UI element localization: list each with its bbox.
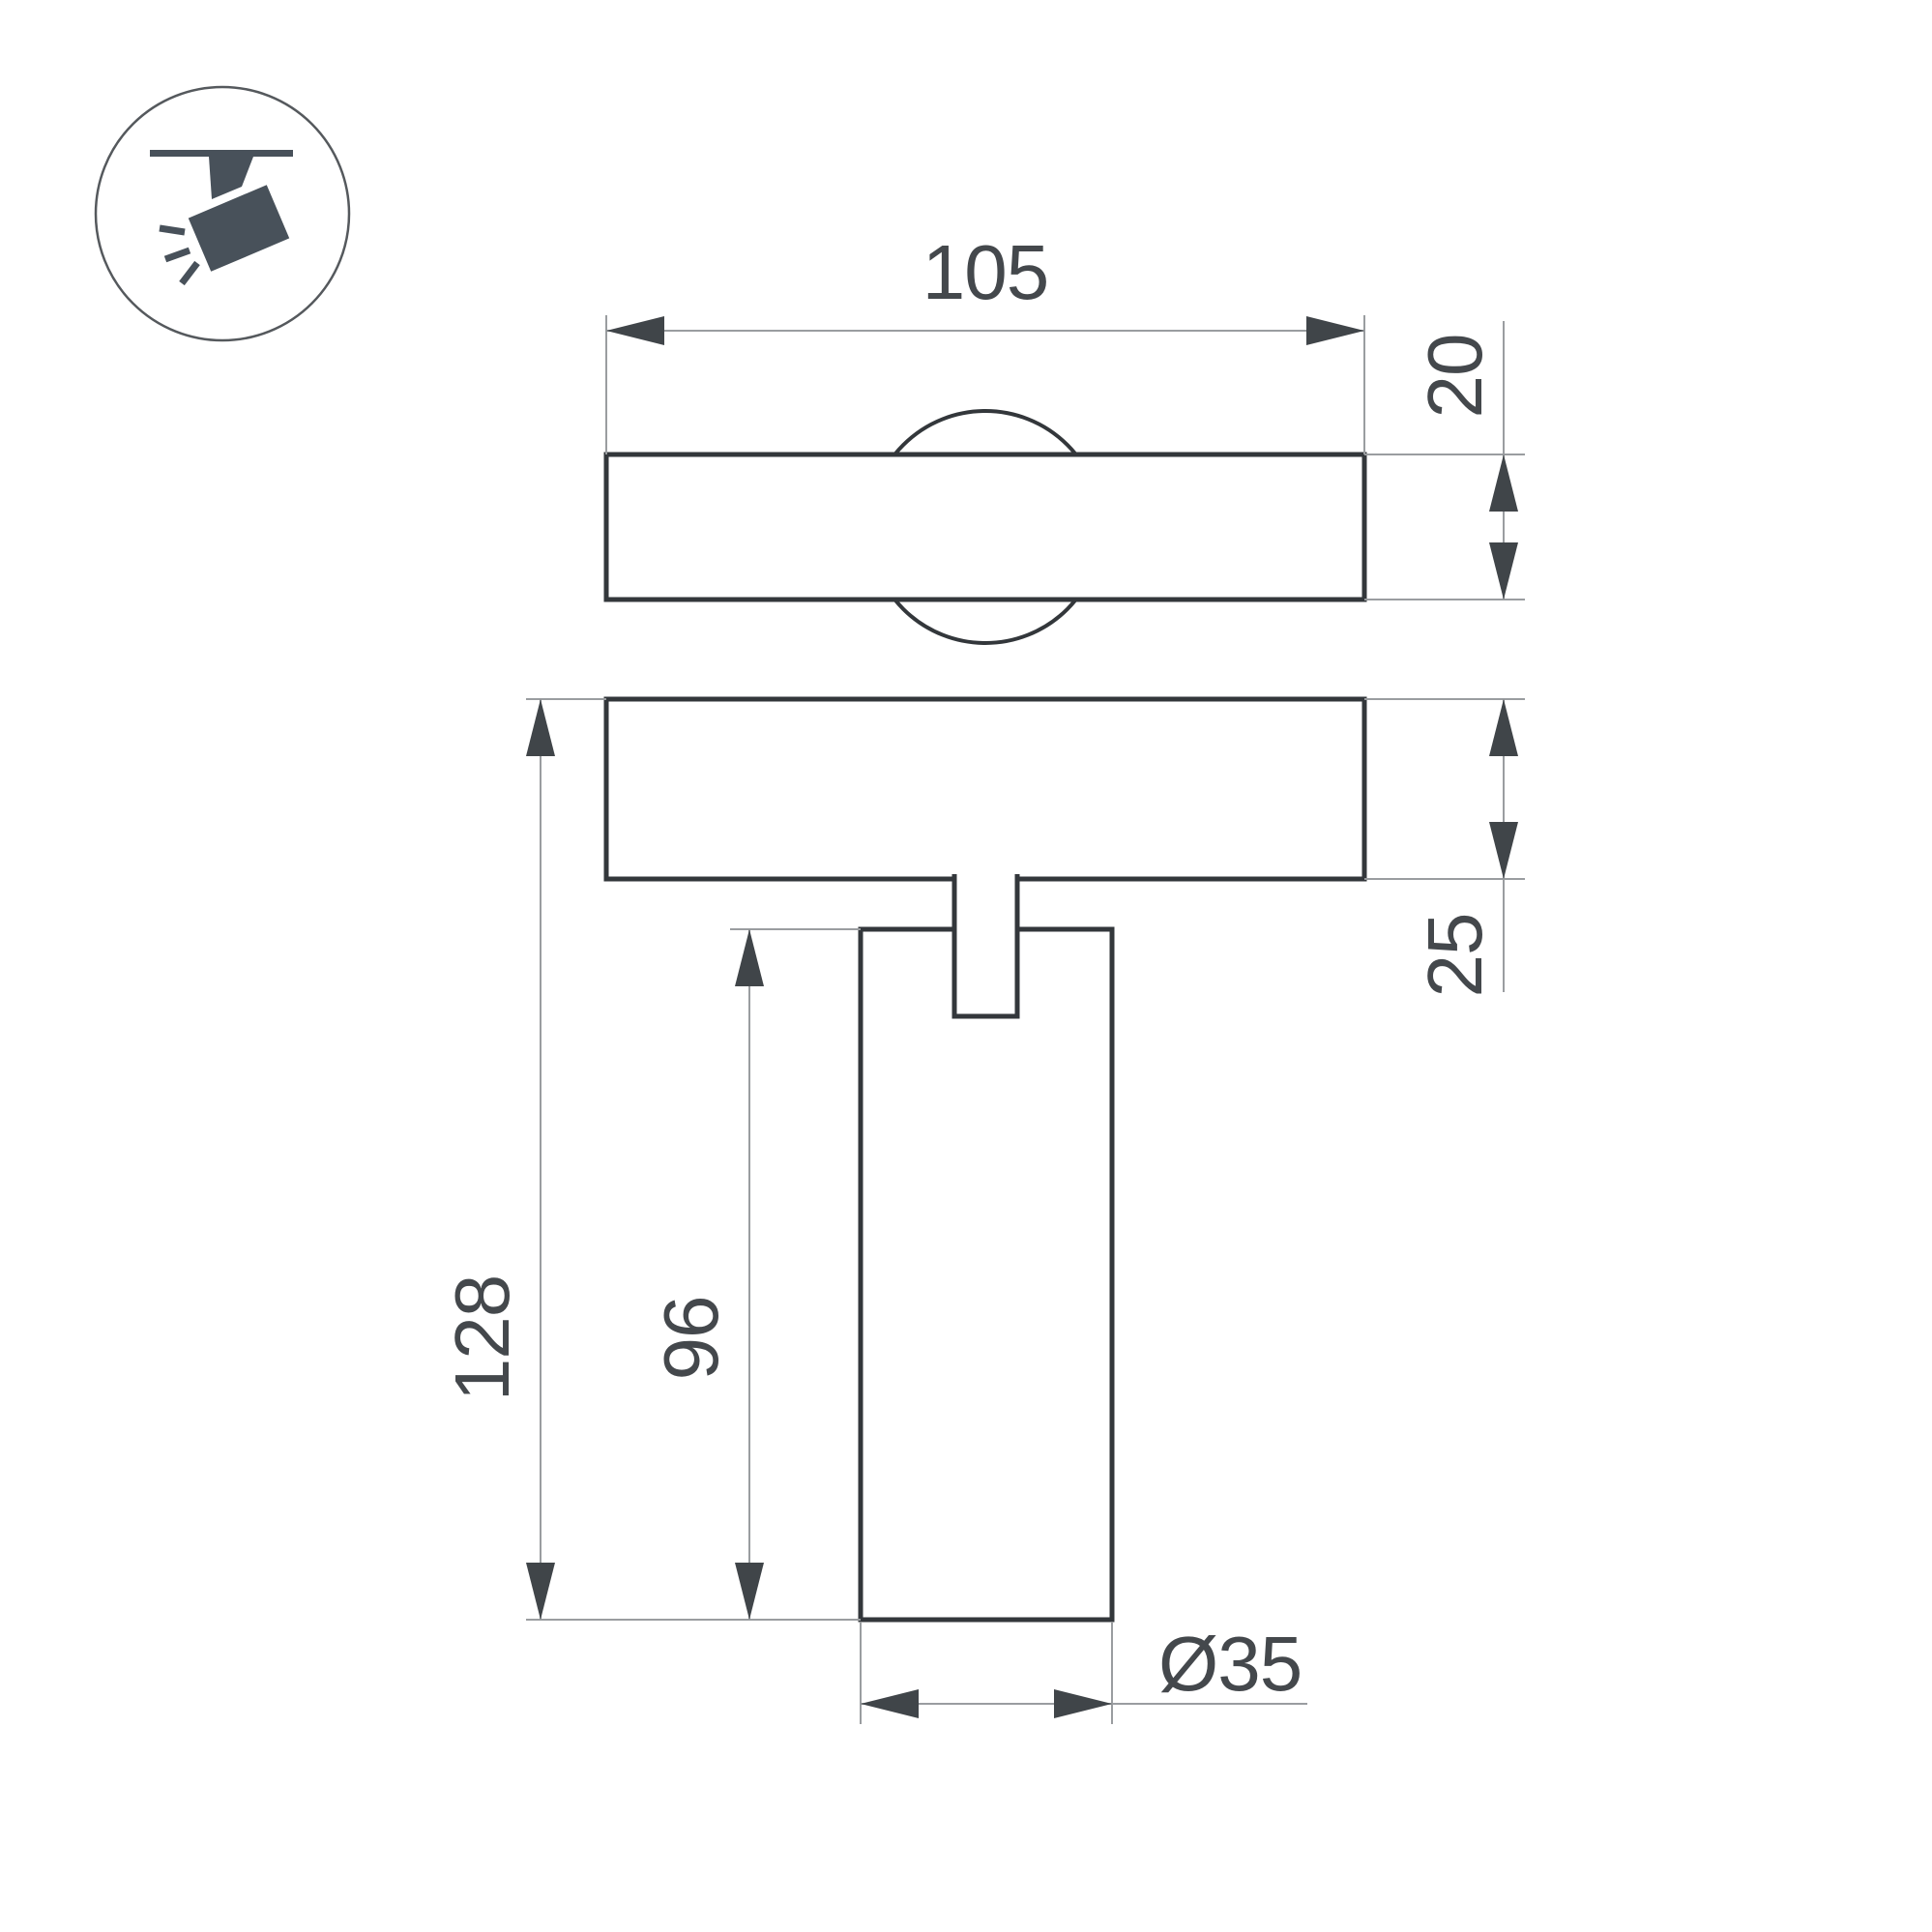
- top-view: [606, 411, 1364, 643]
- arrowhead-right: [1306, 316, 1364, 345]
- arrowhead-down: [526, 1563, 555, 1620]
- arrowhead-down: [735, 1563, 764, 1620]
- icon-light-ray: [160, 228, 185, 232]
- arrowhead-up: [526, 699, 555, 756]
- dimension-diameter-35: Ø35: [861, 1621, 1307, 1724]
- dimension-25: 25: [1364, 699, 1525, 997]
- icon-track-bar: [150, 150, 293, 157]
- side-view-plate: [606, 699, 1364, 879]
- track-spotlight-icon: [96, 87, 349, 340]
- arrowhead-right: [1054, 1689, 1112, 1718]
- dimension-20: 20: [1364, 321, 1525, 600]
- arrowhead-left: [606, 316, 664, 345]
- dimension-label-25: 25: [1412, 914, 1498, 998]
- arrowhead-up: [1489, 699, 1518, 756]
- dimension-label-105: 105: [922, 229, 1048, 315]
- dimension-label-diameter-35: Ø35: [1158, 1621, 1302, 1707]
- arrowhead-up: [735, 929, 764, 986]
- technical-drawing: 105 20 25 128 96: [0, 0, 1932, 1932]
- arrowhead-down: [1489, 822, 1518, 879]
- arrowhead-down: [1489, 542, 1518, 600]
- dimension-96: 96: [648, 929, 861, 1620]
- drawing-canvas: 105 20 25 128 96: [0, 0, 1932, 1932]
- top-view-plate: [606, 454, 1364, 600]
- side-view-stem: [954, 874, 1017, 1016]
- dimension-label-128: 128: [439, 1275, 525, 1401]
- side-view-lamp-body: [861, 929, 1112, 1620]
- arrowhead-up: [1489, 454, 1518, 512]
- arrowhead-left: [861, 1689, 919, 1718]
- dimension-label-20: 20: [1412, 335, 1498, 419]
- side-view: [606, 699, 1364, 1620]
- dimension-label-96: 96: [648, 1297, 734, 1381]
